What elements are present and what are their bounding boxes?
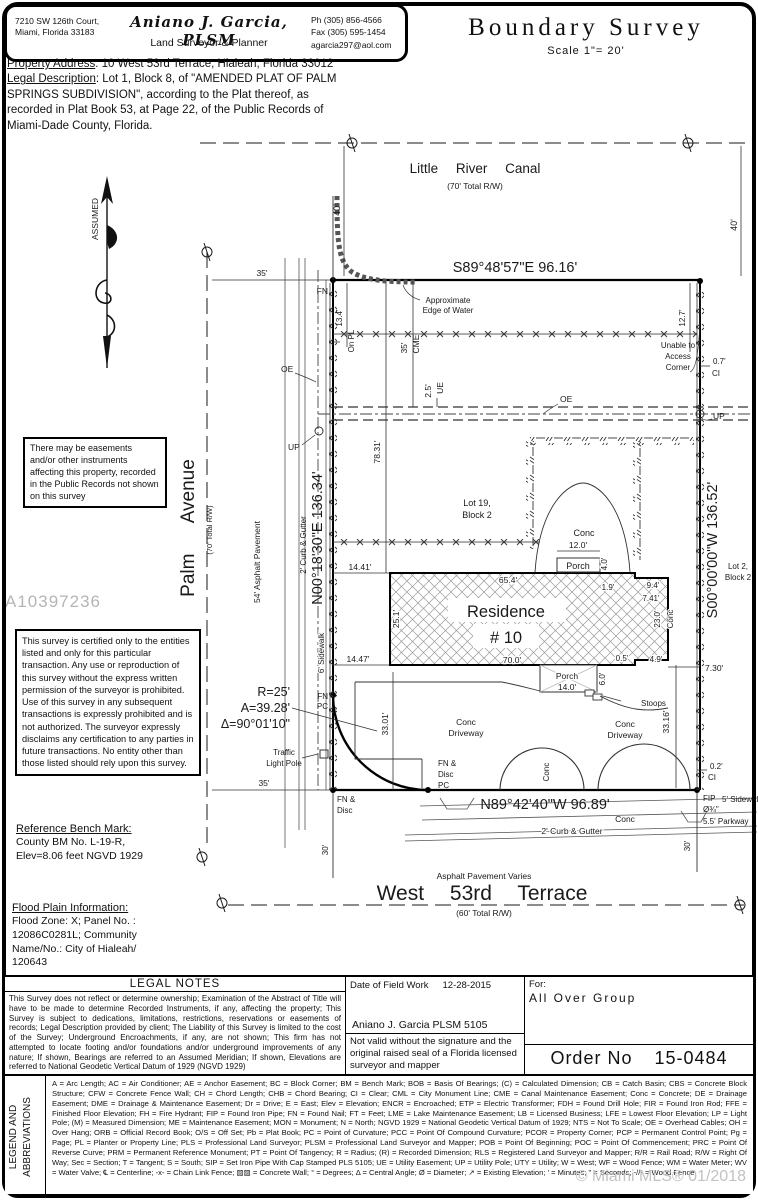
traffic-pole-2: Light Pole xyxy=(266,759,302,768)
pt-point xyxy=(425,787,431,793)
property-address-label: Property Address xyxy=(7,58,95,70)
residence-label-2: # 10 xyxy=(490,629,522,647)
surveyor-signature: Aniano J. Garcia PLSM 5105 xyxy=(346,1019,524,1034)
conc-parkway-label: Conc xyxy=(615,814,636,824)
client-name: All Over Group xyxy=(525,990,753,1006)
dim-4-0: 4.0' xyxy=(600,557,609,570)
dim-12-7: 12.7' xyxy=(678,309,687,327)
up-label: UP xyxy=(288,442,300,452)
wood-fence xyxy=(526,441,534,549)
dim-40-left: 40' xyxy=(332,204,342,216)
property-address-line: Property Address: 10 West 53rd Terrace, … xyxy=(7,57,355,72)
porch-label: Porch xyxy=(566,561,590,571)
fn-label: FN xyxy=(317,286,328,296)
dim-14-0: 14.0' xyxy=(558,682,577,692)
south-bearing: N89°42'40"W 96.89' xyxy=(480,797,610,813)
concrete-wall-hatch xyxy=(337,196,415,282)
canal-name: Little River Canal xyxy=(410,161,541,176)
dim-23-0: 23.0' xyxy=(653,610,662,628)
footer-row-1: LEGAL NOTES This Survey does not reflect… xyxy=(5,977,753,1076)
field-work-label: Date of Field Work xyxy=(350,980,429,991)
fn-pc-1: FN xyxy=(317,692,328,701)
leader-line xyxy=(295,373,316,382)
lot19-label-1: Lot 19, xyxy=(463,498,491,508)
field-work-line: Date of Field Work 12-28-2015 xyxy=(346,977,524,994)
legal-notes-body: This Survey does not reflect or determin… xyxy=(5,992,345,1074)
oe-label: OE xyxy=(281,364,294,374)
curve-arc-length: A=39.28' xyxy=(241,701,290,715)
utility-pole-icon xyxy=(315,427,323,435)
asphalt-varies-label: Asphalt Pavement Varies xyxy=(437,871,532,881)
parkway-label: 5.5' Parkway xyxy=(703,817,749,826)
dim-0-7: 0.7' xyxy=(713,357,726,366)
legend-title-line-1: LEGEND AND xyxy=(7,1077,21,1197)
fn-pc-2: PC xyxy=(317,702,328,711)
oe-label: OE xyxy=(560,394,573,404)
leader-line xyxy=(543,404,558,414)
benchmark-title: Reference Bench Mark: xyxy=(16,822,143,836)
cme-label: CME xyxy=(411,334,421,353)
lot2-label-1: Lot 2, xyxy=(728,562,748,571)
surveyor-header-box: 7210 SW 126th Court, Miami, Florida 3318… xyxy=(4,4,408,62)
legal-description-line: Legal Description: Lot 1, Block 8, of "A… xyxy=(7,72,355,134)
dim-2-5: 2.5' xyxy=(423,384,433,398)
surveyor-title: Land Surveyor & Planner xyxy=(103,37,315,49)
dim-4-9: 4.9' xyxy=(650,655,663,664)
easements-note-box: There may be easements and/or other inst… xyxy=(23,437,167,508)
field-work-cell: Date of Field Work 12-28-2015 Aniano J. … xyxy=(346,977,525,1074)
client-cell: For: All Over Group Order No 15-0484 xyxy=(525,977,753,1074)
up-label: UP xyxy=(713,411,725,421)
dim-7-41: 7.41' xyxy=(642,594,660,603)
dim-12-0: 12.0' xyxy=(569,540,588,550)
lot2-label-2: Block 2 xyxy=(725,573,752,582)
curve-delta: Δ=90°01'10" xyxy=(221,717,290,731)
dim-70-0: 70.0' xyxy=(503,655,522,665)
porch-bottom-label: Porch xyxy=(556,671,578,681)
fn-disc-2: Disc xyxy=(337,806,353,815)
driveway-flare xyxy=(440,798,474,809)
watermark-id: A10397236 xyxy=(5,592,101,612)
boundary-survey-sheet: 7210 SW 126th Court, Miami, Florida 3318… xyxy=(0,0,758,1200)
dim-14-41: 14.41' xyxy=(349,562,372,572)
on-pl-label: On PL xyxy=(347,329,356,352)
conc-driveway-2b: Driveway xyxy=(608,730,644,740)
ue-label: UE xyxy=(435,382,445,394)
chain-link-fence xyxy=(696,283,704,790)
document-title: Boundary Survey xyxy=(428,14,744,42)
conc-driveway-1a: Conc xyxy=(456,717,477,727)
palm-avenue-rw: (70' Total R/W) xyxy=(205,505,214,555)
stoops-label: Stoops xyxy=(641,699,666,708)
dim-33-16: 33.16' xyxy=(661,710,671,733)
conc-driveway-2a: Conc xyxy=(615,719,636,729)
dim-0-5: 0.5' xyxy=(616,654,629,663)
north-bearing: S89°48'57"E 96.16' xyxy=(453,260,578,276)
dim-13-4: 13.4' xyxy=(335,309,344,327)
chain-link-fence xyxy=(333,331,697,339)
stoop xyxy=(593,694,602,700)
order-number-box: Order No 15-0484 xyxy=(525,1044,753,1074)
unable-access-2: Access xyxy=(665,352,691,361)
curve-radius: R=25' xyxy=(257,685,290,699)
dim-7-30: 7.30' xyxy=(705,663,724,673)
leader-line xyxy=(302,754,318,758)
dim-6-0: 6.0' xyxy=(598,672,607,685)
dim-33-01: 33.01' xyxy=(380,712,390,735)
traffic-light-pole-icon xyxy=(320,750,328,758)
dim-40-right: 40' xyxy=(729,219,739,231)
scale-note: Scale 1"= 20' xyxy=(428,45,744,57)
dim-0-2: 0.2' xyxy=(710,762,723,771)
approx-edge-2: Edge of Water xyxy=(423,306,474,315)
dim-9-4: 9.4' xyxy=(647,581,660,590)
dim-14-47: 14.47' xyxy=(347,654,370,664)
leader-line xyxy=(302,435,315,445)
property-description: Property Address: 10 West 53rd Terrace, … xyxy=(7,57,355,134)
surveyor-contact: Ph (305) 856-4566 Fax (305) 595-1454 aga… xyxy=(311,14,391,51)
clear-label: CI xyxy=(712,369,720,378)
unable-access-3: Corner xyxy=(666,363,691,372)
sidewalk-5-label: 5' Sidewalk xyxy=(722,795,758,804)
wood-fence xyxy=(633,441,641,560)
dim-1-9: 1.9' xyxy=(602,583,615,592)
assumed-label: ASSUMED xyxy=(90,198,100,240)
dim-35-bottom: 35' xyxy=(258,778,269,788)
dim-25-1: 25.1' xyxy=(391,610,401,629)
legal-notes-title: LEGAL NOTES xyxy=(5,977,345,992)
east-bearing: S00°00'00"W 136.52' xyxy=(705,481,721,618)
order-label: Order No xyxy=(550,1048,632,1068)
approx-edge-1: Approximate xyxy=(426,296,471,305)
dim-65-4: 65.4' xyxy=(499,575,518,585)
leader-line xyxy=(403,285,420,300)
dim-cme-35: 35' xyxy=(399,342,409,353)
conc-driveway-1b: Driveway xyxy=(449,728,485,738)
surveyor-address: 7210 SW 126th Court, Miami, Florida 3318… xyxy=(15,16,99,39)
corner-radius-arc xyxy=(333,695,428,790)
order-number: 15-0484 xyxy=(654,1048,727,1068)
chain-link-fence xyxy=(329,283,337,790)
property-address-value: : 10 West 53rd Terrace, Hialeah, Florida… xyxy=(95,58,333,70)
legal-notes-cell: LEGAL NOTES This Survey does not reflect… xyxy=(5,977,346,1074)
wood-fence xyxy=(530,437,694,445)
clear-label-2: CI xyxy=(708,773,716,782)
dim-30-right: 30' xyxy=(683,840,692,851)
legend-title-line-2: ABBREVIATIONS xyxy=(21,1077,35,1197)
certification-note-box: This survey is certified only to the ent… xyxy=(15,629,201,776)
watermark-mls: © Miami MLS® 01/2018 xyxy=(576,1168,746,1186)
title-block: Boundary Survey Scale 1"= 20' xyxy=(428,14,744,57)
centerline-icon xyxy=(217,894,227,912)
sidewalk-6-label: 6' Sidewalk xyxy=(317,632,326,673)
validity-note: Not valid without the signature and the … xyxy=(346,1034,524,1074)
flood-body: Flood Zone: X; Panel No. : 12086C0281L; … xyxy=(12,915,137,970)
lot19-label-2: Block 2 xyxy=(462,510,492,520)
fn-disc-pc-3: PC xyxy=(438,781,449,790)
flood-note: Flood Plain Information: Flood Zone: X; … xyxy=(12,901,137,970)
west-bearing: N00°18'30"E 136.34' xyxy=(310,471,326,605)
unable-access-1: Unable to xyxy=(661,341,696,350)
conc-label: Conc xyxy=(542,763,551,782)
dim-35-top: 35' xyxy=(256,268,267,278)
conc-label: Conc xyxy=(666,610,675,629)
centerline-icon xyxy=(197,848,207,866)
legend-title: LEGEND AND ABBREVIATIONS xyxy=(7,1077,43,1197)
fn-disc-pc-2: Disc xyxy=(438,770,454,779)
street-rw: (60' Total R/W) xyxy=(456,908,512,918)
traffic-pole-1: Traffic xyxy=(273,748,295,757)
benchmark-note: Reference Bench Mark: County BM No. L-19… xyxy=(16,822,143,864)
benchmark-body: County BM No. L-19-R, Elev=8.06 feet NGV… xyxy=(16,836,143,863)
chain-link-fence xyxy=(333,539,540,547)
field-work-date: 12-28-2015 xyxy=(443,980,492,991)
fip-diameter: Ø¾" xyxy=(703,805,719,814)
palm-avenue-name: Palm Avenue xyxy=(178,459,199,597)
fn-disc-pc-1: FN & xyxy=(438,759,457,768)
curb-gutter-bottom-label: 2' Curb & Gutter xyxy=(541,826,602,836)
residence-label-1: Residence xyxy=(467,603,545,621)
dim-78-31: 78.31' xyxy=(372,440,382,463)
legend-title-cell: LEGEND AND ABBREVIATIONS xyxy=(5,1076,46,1194)
flood-title: Flood Plain Information: xyxy=(12,901,137,915)
footer-block: LEGAL NOTES This Survey does not reflect… xyxy=(5,975,753,1194)
legal-description-label: Legal Description xyxy=(7,73,96,85)
conc-label: Conc xyxy=(573,528,595,538)
dim-30-left: 30' xyxy=(321,844,330,855)
curb-gutter-label: 2' Curb & Gutter xyxy=(299,516,308,574)
fn-disc-1: FN & xyxy=(337,795,356,804)
canal-rw: (70' Total R/W) xyxy=(447,181,503,191)
street-name: West 53rd Terrace xyxy=(377,882,588,905)
for-label: For: xyxy=(525,977,753,990)
fip-label: FIP xyxy=(703,794,715,803)
asphalt-54-label: 54' Asphalt Pavement xyxy=(252,520,262,603)
